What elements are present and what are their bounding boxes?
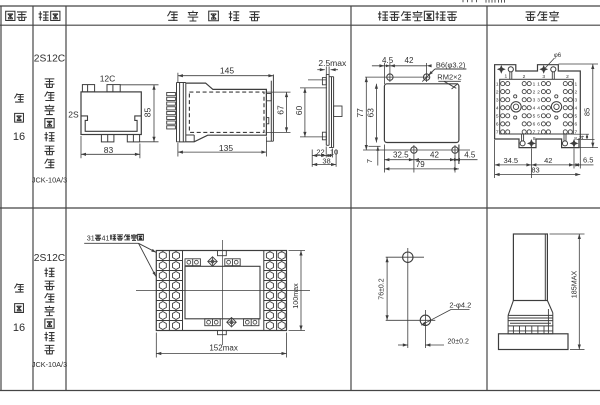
svg-text:79: 79 [416, 160, 425, 169]
svg-text:4: 4 [533, 106, 536, 112]
svg-text:JCK-10A/3: JCK-10A/3 [32, 175, 67, 184]
svg-text:7: 7 [496, 130, 499, 136]
svg-text:7: 7 [574, 130, 577, 136]
svg-text:63: 63 [365, 108, 375, 118]
svg-text:3: 3 [542, 74, 545, 80]
svg-text:76±0.2: 76±0.2 [379, 278, 386, 299]
svg-text:7: 7 [533, 130, 536, 136]
svg-text:2S: 2S [68, 109, 79, 119]
svg-text:5: 5 [533, 114, 536, 120]
svg-text:1: 1 [504, 74, 507, 80]
svg-text:B6(φ3.2): B6(φ3.2) [436, 61, 466, 70]
svg-text:2.5max: 2.5max [318, 58, 347, 68]
svg-text:42: 42 [405, 56, 414, 65]
svg-text:10: 10 [330, 148, 338, 157]
svg-text:4: 4 [579, 135, 586, 139]
svg-text:4.5: 4.5 [382, 56, 394, 65]
svg-text:5: 5 [537, 114, 540, 120]
svg-text:2: 2 [574, 89, 577, 95]
svg-text:38: 38 [322, 156, 330, 165]
svg-text:2: 2 [566, 74, 569, 80]
svg-text:1: 1 [533, 81, 536, 87]
svg-text:8: 8 [533, 136, 536, 142]
svg-text:185MAX: 185MAX [569, 271, 578, 299]
svg-text:12C: 12C [100, 74, 116, 84]
svg-text:145: 145 [220, 66, 234, 76]
svg-text:2S12C: 2S12C [34, 253, 66, 264]
svg-text:RM2×2: RM2×2 [437, 72, 461, 81]
svg-text:7: 7 [365, 159, 374, 163]
svg-text:7: 7 [537, 130, 540, 136]
svg-text:85: 85 [143, 108, 153, 118]
svg-text:41: 41 [102, 233, 110, 242]
svg-text:100max: 100max [291, 283, 300, 309]
svg-text:3: 3 [533, 98, 536, 104]
svg-text:6: 6 [533, 122, 536, 128]
svg-text:20±0.2: 20±0.2 [448, 339, 469, 346]
svg-text:32.5: 32.5 [393, 151, 409, 160]
svg-text:31: 31 [87, 233, 95, 242]
svg-text:5: 5 [496, 114, 499, 120]
svg-text:135: 135 [219, 143, 233, 153]
svg-text:4.5: 4.5 [464, 151, 476, 160]
svg-text:4: 4 [574, 106, 577, 112]
svg-text:2: 2 [523, 74, 526, 80]
svg-text:2S12C: 2S12C [34, 53, 66, 64]
svg-text:1: 1 [574, 81, 577, 87]
svg-text:6: 6 [537, 122, 540, 128]
svg-text:2: 2 [496, 89, 499, 95]
svg-text:42: 42 [430, 151, 439, 160]
svg-text:8: 8 [574, 136, 577, 142]
svg-text:77: 77 [355, 108, 365, 118]
svg-text:3: 3 [574, 98, 577, 104]
svg-text:2: 2 [537, 89, 540, 95]
svg-text:85: 85 [583, 108, 592, 116]
svg-text:2-φ4.2: 2-φ4.2 [449, 301, 471, 310]
svg-text:1: 1 [537, 81, 540, 87]
svg-text:83: 83 [104, 145, 114, 155]
svg-text:22: 22 [316, 148, 324, 157]
svg-text:JCK-10A/3: JCK-10A/3 [32, 360, 67, 369]
svg-text:42: 42 [544, 156, 552, 165]
svg-text:φ6: φ6 [554, 53, 562, 59]
svg-text:16: 16 [13, 131, 25, 143]
svg-text:6.5: 6.5 [583, 156, 593, 165]
svg-text:1: 1 [496, 81, 499, 87]
svg-text:3: 3 [537, 98, 540, 104]
svg-text:16: 16 [13, 322, 25, 334]
svg-text:4: 4 [496, 106, 499, 112]
svg-text:152max: 152max [209, 344, 237, 353]
svg-text:83: 83 [531, 165, 539, 174]
svg-text:4: 4 [537, 106, 540, 112]
svg-text:67: 67 [275, 105, 285, 115]
svg-text:6: 6 [496, 122, 499, 128]
svg-text:5: 5 [574, 114, 577, 120]
svg-text:6: 6 [574, 122, 577, 128]
svg-text:2: 2 [533, 89, 536, 95]
svg-text:3: 3 [496, 98, 499, 104]
svg-text:60: 60 [294, 106, 304, 116]
svg-text:34.5: 34.5 [503, 156, 518, 165]
